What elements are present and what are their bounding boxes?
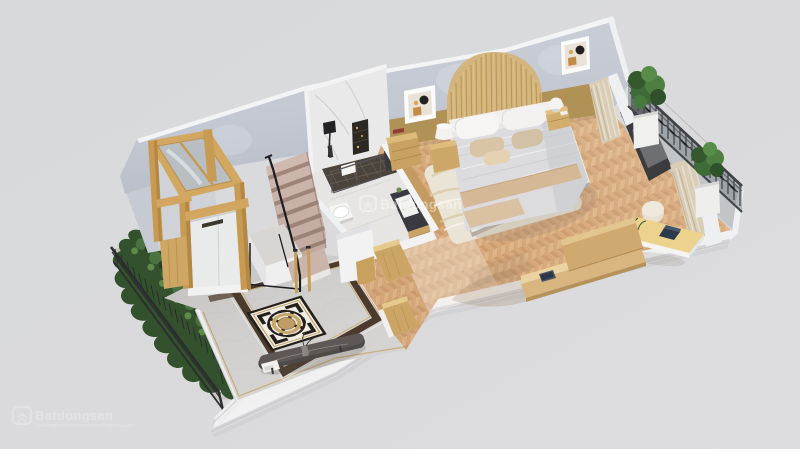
svg-text:Batdongsan: Batdongsan (380, 197, 462, 212)
svg-text:Batdongsan.com.vn thuoc Proper: Batdongsan.com.vn thuoc PropertyGuru (36, 423, 134, 429)
svg-text:Batdongsan: Batdongsan (35, 408, 113, 423)
